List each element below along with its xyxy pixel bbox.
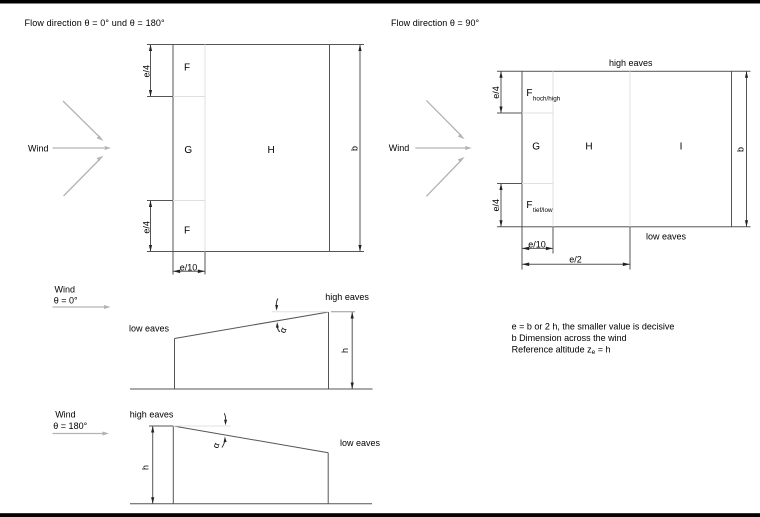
svg-text:H: H [268,145,275,156]
svg-text:low eaves: low eaves [340,438,381,448]
svg-text:H: H [585,142,592,153]
svg-text:b Dimension across the wind: b Dimension across the wind [512,333,627,343]
svg-text:F: F [526,200,532,211]
svg-text:e/4: e/4 [141,221,151,234]
svg-text:e/10: e/10 [180,263,198,273]
svg-text:Wind: Wind [28,144,49,154]
svg-text:Wind: Wind [55,410,76,420]
svg-text:Flow direction θ = 0° und θ =: Flow direction θ = 0° und θ = 180° [25,18,165,28]
svg-text:Wind: Wind [55,285,76,295]
svg-text:low eaves: low eaves [646,232,687,242]
svg-text:high eaves: high eaves [325,292,369,302]
svg-text:tief/low: tief/low [533,207,553,214]
svg-text:F: F [526,88,532,99]
svg-text:e/4: e/4 [141,65,151,78]
svg-text:b: b [736,147,746,152]
svg-text:low eaves: low eaves [129,324,170,334]
svg-text:e/10: e/10 [528,240,546,250]
svg-text:b: b [350,146,360,151]
svg-text:Reference altitude ze = h: Reference altitude ze = h [512,345,611,357]
svg-text:hoch/high: hoch/high [533,95,561,102]
svg-text:θ = 180°: θ = 180° [53,421,87,431]
svg-text:I: I [680,142,683,153]
svg-text:G: G [184,145,192,156]
svg-text:e/2: e/2 [569,254,582,264]
svg-text:G: G [532,142,540,153]
svg-text:Flow direction θ = 90°: Flow direction θ = 90° [391,18,480,28]
svg-text:h: h [340,348,350,353]
svg-text:F: F [184,62,190,73]
svg-text:e/4: e/4 [491,199,501,212]
svg-text:high eaves: high eaves [609,58,653,68]
svg-text:e/4: e/4 [491,86,501,99]
svg-text:F: F [184,225,190,236]
svg-text:θ = 0°: θ = 0° [54,295,78,305]
svg-text:e = b or 2 h, the smaller valu: e = b or 2 h, the smaller value is decis… [512,322,675,332]
svg-text:Wind: Wind [389,143,410,153]
svg-text:high eaves: high eaves [130,410,174,420]
svg-text:h: h [141,465,151,470]
